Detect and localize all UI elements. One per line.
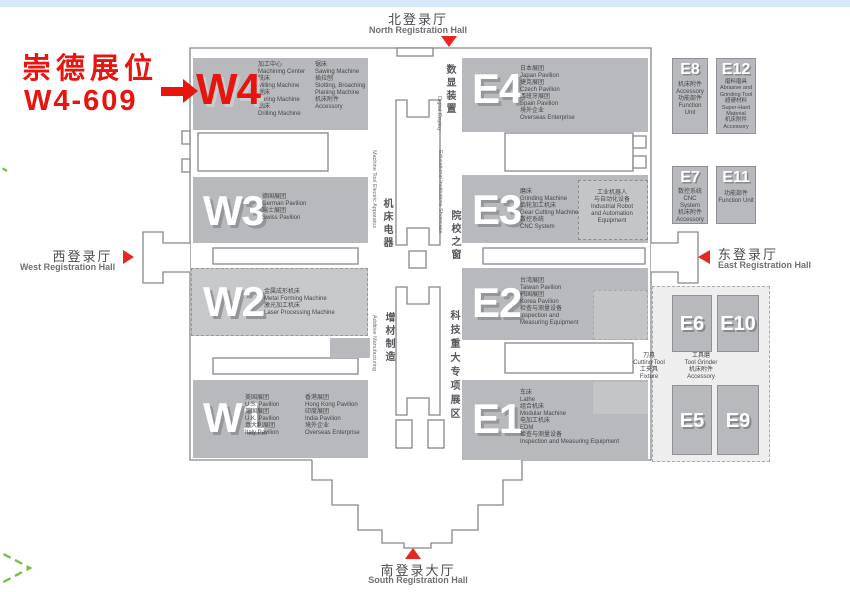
- hall-w3: W3 德国展团German Pavilion瑞士展团Swiss Pavilion: [193, 177, 368, 243]
- hall-e11-desc: 功能部件Function Unit: [717, 191, 755, 205]
- corridor-outline: [213, 248, 358, 264]
- hall-e6-code: E6: [673, 313, 711, 336]
- hall-w2: W2 金属成形机床Metal Forming Machine激光加工机床Lase…: [191, 268, 368, 336]
- hall-e5-code: E5: [673, 410, 711, 433]
- hall-e1-code: E1: [472, 398, 521, 440]
- hall-e4: E4 日本展团Japan Pavilion捷克展团Czech Pavilion西…: [462, 58, 648, 132]
- hall-e2-code: E2: [472, 282, 521, 324]
- hall-w4-desc-col2: 锯床Sawing Machine插拉刨Slotting, BroachingPl…: [315, 62, 365, 111]
- hall-e10: E10: [717, 295, 759, 352]
- industrial-robot-zone: 工业机器人与自动化设备Industrial Robotand Automatio…: [578, 180, 648, 240]
- hall-e6: E6: [672, 295, 712, 352]
- booth-arrow-icon: [161, 87, 183, 96]
- hall-e12-code: E12: [717, 61, 755, 79]
- south-entrance-arrow-icon: [405, 548, 421, 559]
- additive-label-en: Additive Manufacturing: [371, 315, 377, 371]
- west-entrance-arrow-icon: [123, 250, 134, 264]
- corridor-outline: [198, 133, 328, 171]
- hall-w1-desc-col1: 美国展团U.S. Pavilion英国展团U.K. Pavilion意大利展团I…: [245, 395, 279, 437]
- booth-annotation-number: W4-609: [24, 87, 138, 116]
- hall-e7-desc: 数控系统CNC System机床附件Accessory: [673, 189, 707, 224]
- center-corridor-lower: [396, 287, 440, 415]
- north-entrance-tab: [397, 48, 433, 56]
- industrial-robot-zone-label: 工业机器人与自动化设备Industrial Robotand Automatio…: [581, 190, 643, 225]
- hall-e2-desc: 台湾展团Taiwan Pavilion韩国展团Korea Pavilion检查与…: [520, 278, 578, 327]
- hall-e4-code: E4: [472, 68, 521, 110]
- hall-e12: E12 磨料磨具Abrasive andGrinding Tool超硬材料Sup…: [716, 58, 756, 134]
- wall-notch: [633, 156, 646, 168]
- east-entrance-outline: [651, 232, 698, 283]
- hall-w1: W1 美国展团U.S. Pavilion英国展团U.K. Pavilion意大利…: [193, 380, 368, 458]
- center-corridor-upper: [396, 100, 440, 245]
- hall-e9-code: E9: [718, 410, 758, 433]
- corridor-outline: [213, 358, 358, 374]
- hall-e12-desc: 磨料磨具Abrasive andGrinding Tool超硬材料Super-H…: [717, 79, 755, 130]
- hall-e11-code: E11: [717, 169, 755, 187]
- hall-e3-code: E3: [472, 189, 521, 231]
- digital-display-label-en: Digital Display: [436, 96, 442, 131]
- south-registration-label-en: South Registration Hall: [348, 575, 488, 585]
- hall-w2-desc: 金属成形机床Metal Forming Machine激光加工机床Laser P…: [264, 289, 335, 317]
- hall-e11: E11 功能部件Function Unit: [716, 166, 756, 224]
- hall-e9: E9: [717, 385, 759, 455]
- booth-annotation-name: 崇德展位: [22, 55, 158, 84]
- tool-zone-label-col2: 工具磨Tool Grinder机床附件Accessory: [676, 353, 726, 381]
- east-entrance-arrow-icon: [698, 250, 710, 264]
- hall-e8-desc: 机床附件Accessory功能部件Function Unit: [673, 82, 707, 117]
- educational-label-en: Educational Institutions Showcase: [437, 150, 443, 233]
- hall-e8: E8 机床附件Accessory功能部件Function Unit: [672, 58, 708, 134]
- additive-label-zh: 增材制造: [381, 312, 396, 364]
- north-registration-label-en: North Registration Hall: [348, 25, 488, 35]
- south-hall-outline: [312, 460, 522, 548]
- hall-e7-code: E7: [673, 169, 707, 187]
- green-dashed-decoration: [0, 548, 30, 588]
- hall-e3-desc: 磨床Grinding Machine齿轮加工机床Gear Cutting Mac…: [520, 189, 578, 231]
- educational-label-zh: 院校之窗: [447, 210, 462, 262]
- hall-e4-desc: 日本展团Japan Pavilion捷克展团Czech Pavilion西班牙展…: [520, 66, 575, 122]
- center-booth: [396, 420, 412, 448]
- hall-w4-code-highlighted: W4: [196, 68, 260, 112]
- wall-notch: [182, 159, 190, 172]
- corridor-outline: [483, 248, 645, 264]
- hall-w4-desc-col1: 加工中心Machining Center铣床Milling Machine镗床B…: [258, 62, 305, 118]
- exhibition-floorplan: 加工中心Machining Center铣床Milling Machine镗床B…: [0, 0, 850, 592]
- hall-e7: E7 数控系统CNC System机床附件Accessory: [672, 166, 708, 224]
- hall-e10-code: E10: [718, 313, 758, 336]
- machine-tool-electric-label-zh: 机床电器: [379, 198, 394, 250]
- hall-w1-desc-col2: 香港展团Hong Kong Pavilion印度展团India Pavilion…: [305, 395, 360, 437]
- west-registration-label-en: West Registration Hall: [15, 262, 120, 272]
- sci-tech-zone-label: 科技重大专项展区: [446, 310, 461, 422]
- wall-notch: [633, 136, 646, 148]
- hall-e5: E5: [672, 385, 712, 455]
- center-booth: [428, 420, 444, 448]
- hall-w2-extension: [330, 338, 370, 358]
- wall-notch: [182, 131, 190, 144]
- hall-e2-subzone: [593, 290, 648, 340]
- corridor-outline: [505, 133, 633, 171]
- center-square: [409, 251, 426, 268]
- hall-w3-code: W3: [203, 190, 264, 232]
- hall-w2-code: W2: [203, 281, 264, 323]
- digital-display-label-zh: 数显装置: [442, 64, 457, 116]
- tool-zone-label-col1: 刀具Cutting Tool工夹具Fixture: [626, 353, 672, 381]
- north-entrance-arrow-icon: [441, 36, 457, 47]
- green-dashed-decoration-small: [0, 163, 7, 171]
- corridor-outline: [505, 343, 633, 373]
- hall-e1-desc: 车床Lathe组合机床Modular Machine电加工机床EDM检查与测量设…: [520, 390, 619, 446]
- east-registration-label-en: East Registration Hall: [718, 260, 828, 270]
- machine-tool-electric-label-en: Machine Tool Electric Apparatus: [371, 150, 377, 228]
- west-entrance-outline: [143, 232, 190, 283]
- hall-w3-desc: 德国展团German Pavilion瑞士展团Swiss Pavilion: [262, 194, 306, 222]
- hall-e8-code: E8: [673, 61, 707, 79]
